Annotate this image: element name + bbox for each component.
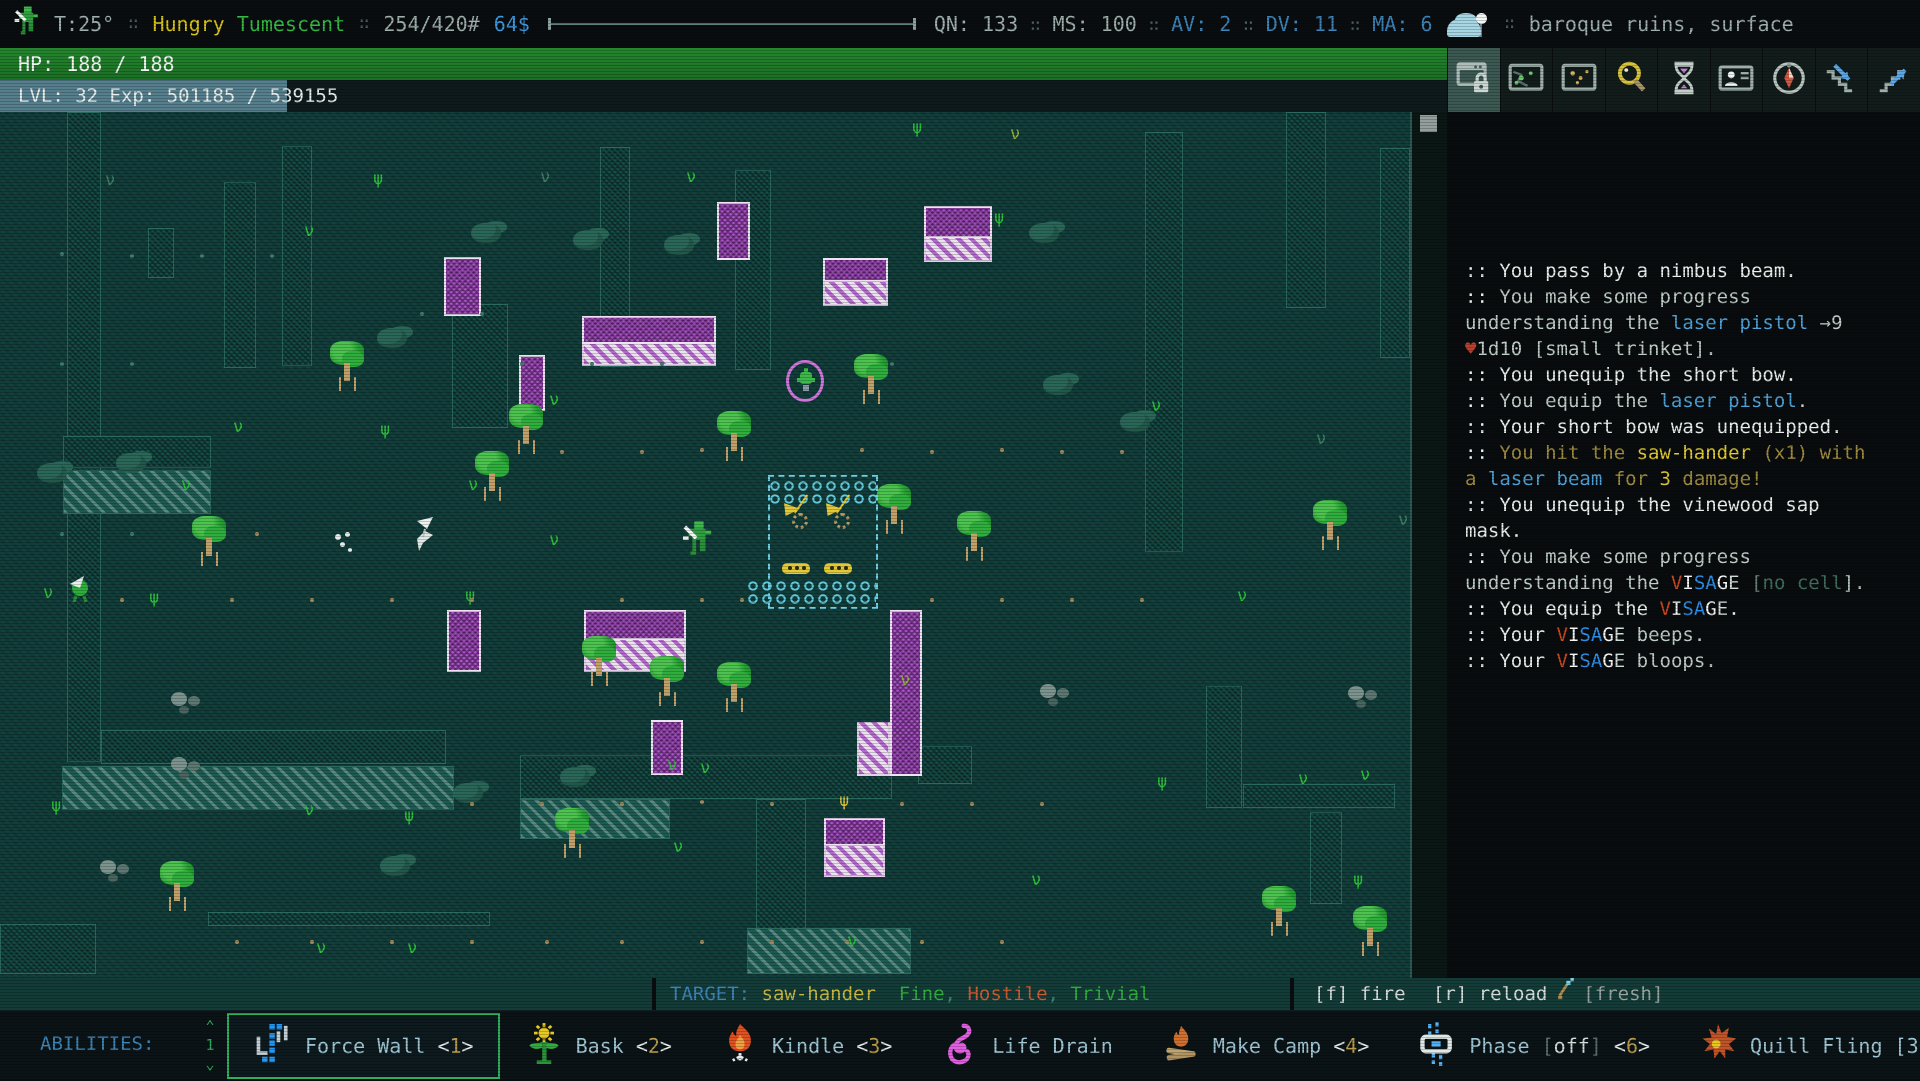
- toolbar-button[interactable]: [1500, 48, 1553, 112]
- separator-icon: ∷: [128, 14, 138, 34]
- abilities-bar: ABILITIES: ⌃ 1 ⌄ Force Wall <1> Bask <2>…: [0, 1010, 1920, 1080]
- ruin-wall-faded: [1310, 812, 1342, 904]
- player-status-icon[interactable]: [14, 5, 40, 44]
- ground-speck: [920, 940, 924, 944]
- grass-tuft: ψ: [149, 590, 159, 607]
- fire-hint[interactable]: [f] fire: [1314, 978, 1406, 1010]
- machine-gear-icon[interactable]: [826, 497, 860, 531]
- grass-tuft: ν: [686, 169, 696, 186]
- ground-speck: [420, 312, 424, 316]
- bask-icon: [524, 1022, 564, 1070]
- ruin-wall-faded: [452, 304, 508, 428]
- grass-tuft: ν: [1151, 398, 1161, 415]
- message-log[interactable]: :: You pass by a nimbus beam.:: You make…: [1447, 112, 1920, 978]
- shrub: [1029, 223, 1059, 243]
- ground-speck: [60, 362, 64, 366]
- grass-tuft: ν: [304, 223, 314, 240]
- grass-tuft: ψ: [1157, 774, 1167, 791]
- weather-cloud-icon[interactable]: [1447, 9, 1491, 39]
- ability-phase[interactable]: Phase [off] <6>: [1393, 1013, 1674, 1079]
- status-effect[interactable]: Hungry: [152, 12, 224, 36]
- game-map[interactable]: ψννψνψννννψψνψνψνψννννψννψννννννννννψ: [0, 112, 1410, 978]
- target-segment: saw-hander: [762, 983, 876, 1005]
- ground-speck: [230, 598, 234, 602]
- toolbar-button[interactable]: [1552, 48, 1605, 112]
- grass-tuft: ν: [1237, 588, 1247, 605]
- boulder: [171, 692, 187, 706]
- log-line: :: You hit the saw-hander (x1) with: [1465, 440, 1904, 466]
- grass-tuft: ν: [673, 839, 683, 856]
- target-segment: ,: [1048, 983, 1071, 1005]
- log-line: a laser beam for 3 damage!: [1465, 466, 1904, 492]
- ruin-wall-faded: [1380, 148, 1410, 358]
- ground-speck: [620, 940, 624, 944]
- grass-tuft: ν: [549, 392, 559, 409]
- active-effects-bar: ACTIVE EFFECTS:: [0, 978, 652, 1010]
- grass-tuft: ψ: [912, 120, 922, 137]
- ability-force-wall[interactable]: Force Wall <1>: [227, 1013, 500, 1079]
- separator-icon: ∷: [1149, 16, 1159, 36]
- ruin-wall-faded: [224, 182, 256, 368]
- grass-tuft: ν: [1298, 771, 1308, 788]
- boulder: [171, 757, 187, 771]
- ground-speck: [700, 448, 704, 452]
- grass-tuft: ψ: [839, 793, 849, 810]
- ground-speck: [60, 532, 64, 536]
- shrub: [664, 235, 694, 255]
- shrub: [377, 328, 407, 348]
- ground-speck: [1060, 450, 1064, 454]
- ground-speck: [1000, 940, 1004, 944]
- ruin-wall: [924, 206, 992, 238]
- toolbar-button[interactable]: [1815, 48, 1868, 112]
- temperature: T:25°: [54, 12, 114, 36]
- ground-speck: [660, 362, 664, 366]
- separator-icon: ∷: [1030, 16, 1040, 36]
- shrub: [573, 230, 603, 250]
- ground-speck: [470, 940, 474, 944]
- tree[interactable]: [328, 341, 368, 393]
- ground-speck: [130, 254, 134, 258]
- stairs-up-icon: [1875, 59, 1913, 101]
- combat-stats: QN: 133 ∷ MS: 100 ∷ AV: 2 ∷ DV: 11 ∷ MA:…: [934, 12, 1433, 36]
- grass-tuft: ψ: [465, 588, 475, 605]
- log-line: mask.: [1465, 518, 1904, 544]
- shrub: [380, 856, 410, 876]
- grass-tuft: ψ: [404, 808, 414, 825]
- ground-speck: [540, 802, 544, 806]
- ground-speck: [520, 362, 524, 366]
- grass-tuft: ν: [105, 172, 115, 189]
- grass-tuft: ν: [540, 169, 550, 186]
- ruin-wall-faded: [0, 924, 96, 974]
- ruin-wall-faded: [1145, 132, 1183, 552]
- shrub: [1043, 375, 1073, 395]
- ground-speck: [130, 362, 134, 366]
- tree[interactable]: [190, 516, 230, 568]
- ruin-wall-top: [823, 282, 888, 306]
- grass-tuft: ν: [1316, 431, 1326, 448]
- ground-speck: [200, 254, 204, 258]
- grass-tuft: ν: [1398, 512, 1408, 529]
- player-character[interactable]: [683, 518, 713, 566]
- machine-hull[interactable]: [824, 563, 852, 574]
- separator-icon: ∷: [1350, 16, 1360, 36]
- boulder: [1348, 686, 1364, 700]
- grass-tuft: ψ: [373, 171, 383, 188]
- tree[interactable]: [473, 451, 513, 503]
- ruin-wall: [717, 202, 750, 260]
- target-segment: ,: [945, 983, 968, 1005]
- tree[interactable]: [1351, 906, 1391, 958]
- ruin-wall-faded: [208, 912, 490, 926]
- ground-speck: [700, 598, 704, 602]
- ruin-wall-faded: [101, 730, 446, 764]
- feather-specks: [335, 532, 355, 556]
- shrub: [471, 223, 501, 243]
- ruin-wall-faded: [1243, 784, 1395, 808]
- grass-tuft: ν: [316, 940, 326, 957]
- stat-value: DV: 11: [1266, 12, 1338, 36]
- ruin-wall-top: [857, 722, 890, 776]
- ground-speck: [740, 598, 744, 602]
- log-line: :: You pass by a nimbus beam.: [1465, 258, 1904, 284]
- ruin-wall-faded: [1286, 112, 1326, 308]
- reload-hint[interactable]: [r] reload: [1433, 978, 1547, 1010]
- ruin-wall-faded: [756, 799, 806, 931]
- ground-speck: [620, 802, 624, 806]
- target-segment: Hostile: [967, 983, 1047, 1005]
- ground-speck: [545, 940, 549, 944]
- ground-speck: [1140, 598, 1144, 602]
- toolbar-button[interactable]: [1762, 48, 1815, 112]
- magnifier-icon: [1612, 59, 1650, 101]
- tree[interactable]: [875, 484, 915, 536]
- ruin-rubble-faded: [747, 928, 911, 974]
- grass-tuft: ψ: [51, 798, 61, 815]
- separator-icon: ∷: [359, 14, 369, 34]
- status-effect[interactable]: Tumescent: [237, 12, 345, 36]
- stat-value: MA: 6: [1372, 12, 1432, 36]
- ground-speck: [235, 940, 239, 944]
- machine-hull[interactable]: [782, 563, 810, 574]
- grass-tuft: ν: [468, 477, 478, 494]
- toolbar-button[interactable]: [1447, 48, 1500, 112]
- hunger-track: [548, 18, 916, 30]
- ground-speck: [390, 598, 394, 602]
- log-line: understanding the VISAGE [no cell].: [1465, 570, 1904, 596]
- log-line: :: You unequip the vinewood sap: [1465, 492, 1904, 518]
- shrub: [116, 453, 146, 473]
- log-line: :: You equip the VISAGE.: [1465, 596, 1904, 622]
- grass-tuft: ν: [43, 585, 53, 602]
- log-line: :: You unequip the short bow.: [1465, 362, 1904, 388]
- ground-speck: [1120, 450, 1124, 454]
- target-segment: Fine: [876, 983, 945, 1005]
- ground-speck: [560, 450, 564, 454]
- grass-tuft: ν: [900, 672, 910, 689]
- compass-icon: [1770, 59, 1808, 101]
- shrub: [1120, 412, 1150, 432]
- grass-tuft: ν: [1010, 126, 1020, 143]
- toolbar: [1447, 48, 1920, 112]
- tree[interactable]: [580, 636, 620, 688]
- toolbar-button[interactable]: [1605, 48, 1658, 112]
- grass-tuft: ν: [181, 477, 191, 494]
- grass-tuft: ψ: [380, 422, 390, 439]
- ruin-wall: [447, 610, 481, 672]
- tree[interactable]: [955, 511, 995, 563]
- abilities-pager[interactable]: ⌃ 1 ⌄: [200, 1017, 220, 1074]
- ground-speck: [900, 802, 904, 806]
- abilities-label: ABILITIES:: [40, 1033, 154, 1055]
- kindle-icon: [720, 1022, 760, 1070]
- stat-value: QN: 133: [934, 12, 1018, 36]
- separator-icon: ∷: [1505, 14, 1515, 34]
- target-segment: TARGET:: [670, 983, 762, 1005]
- ability-quill-fling[interactable]: Quill Fling [300 quills left] <7>: [1674, 1013, 1920, 1079]
- pager-up-icon: ⌃: [200, 1017, 220, 1036]
- tree[interactable]: [715, 662, 755, 714]
- make-camp-icon: [1161, 1022, 1201, 1070]
- shrub: [37, 463, 67, 483]
- grass-tuft: ν: [233, 419, 243, 436]
- ruin-wall-top: [824, 846, 885, 877]
- log-line: :: You make some progress: [1465, 544, 1904, 570]
- force-wall-icon: [253, 1022, 293, 1070]
- character-card-icon: [1717, 59, 1755, 101]
- boulder: [1040, 684, 1056, 698]
- ground-speck: [700, 800, 704, 804]
- phase-icon: [1417, 1022, 1457, 1070]
- xp-text: LVL: 32 Exp: 501185 / 539155: [18, 80, 338, 112]
- ruin-wall-faded: [282, 146, 312, 366]
- ground-speck: [470, 802, 474, 806]
- ruin-rubble-faded: [62, 766, 454, 810]
- ground-speck: [480, 312, 484, 316]
- ability-life-drain[interactable]: Life Drain: [916, 1013, 1136, 1079]
- grass-tuft: ν: [1360, 767, 1370, 784]
- ruin-wall-top: [924, 238, 992, 262]
- saw-hander-creature[interactable]: [413, 514, 437, 560]
- tree[interactable]: [553, 808, 593, 860]
- ground-speck: [970, 802, 974, 806]
- stat-value: AV: 2: [1171, 12, 1231, 36]
- ability-bask[interactable]: Bask <2>: [500, 1013, 696, 1079]
- tree[interactable]: [507, 404, 547, 456]
- hourglass-icon: [1665, 59, 1703, 101]
- machine-gear-icon[interactable]: [784, 497, 818, 531]
- ground-speck: [270, 254, 274, 258]
- stairs-down-icon: [1822, 59, 1860, 101]
- window-lock-icon: [1455, 59, 1493, 101]
- ruin-wall-faded: [735, 170, 771, 370]
- log-line: :: You make some progress: [1465, 284, 1904, 310]
- ground-speck: [130, 532, 134, 536]
- status-bar: T:25° ∷ Hungry Tumescent ∷ 254/420# 64$ …: [0, 0, 1920, 48]
- scrollbar-thumb[interactable]: [1420, 115, 1437, 132]
- log-line: ♥1d10 [small trinket].: [1465, 336, 1904, 362]
- status-effects[interactable]: Hungry Tumescent: [152, 12, 345, 36]
- tree[interactable]: [1260, 886, 1300, 938]
- grass-tuft: ν: [700, 760, 710, 777]
- ground-speck: [255, 532, 259, 536]
- ground-speck: [1040, 802, 1044, 806]
- fire-reload-bar: [f] fire [r] reload [fresh]: [1294, 978, 1920, 1010]
- separator-icon: ∷: [1243, 16, 1253, 36]
- grass-tuft: ν: [304, 802, 314, 819]
- ground-speck: [120, 598, 124, 602]
- map-scrollbar[interactable]: [1410, 112, 1447, 978]
- ground-speck: [1070, 598, 1074, 602]
- tree[interactable]: [1311, 500, 1351, 552]
- log-line: :: Your short bow was unequipped.: [1465, 414, 1904, 440]
- hp-bar: HP: 188 / 188: [0, 48, 1447, 80]
- ruin-wall: [890, 610, 922, 776]
- ability-row: Force Wall <1> Bask <2> Kindle <3> Life …: [227, 1011, 1920, 1081]
- ground-speck: [1000, 598, 1004, 602]
- tree[interactable]: [715, 411, 755, 463]
- ground-speck: [310, 598, 314, 602]
- log-line: understanding the laser pistol →9: [1465, 310, 1904, 336]
- caged-creature[interactable]: [786, 360, 824, 402]
- grass-tuft: ψ: [994, 210, 1004, 227]
- tree[interactable]: [852, 354, 892, 406]
- toolbar-button[interactable]: [1710, 48, 1763, 112]
- map-local-icon: [1507, 59, 1545, 101]
- ruin-wall: [823, 258, 888, 282]
- boulder: [100, 860, 116, 874]
- ammo-quill-icon: [1555, 978, 1575, 1010]
- ground-speck: [590, 362, 594, 366]
- grass-tuft: ν: [667, 757, 677, 774]
- shrub: [560, 767, 590, 787]
- ruin-wall: [582, 316, 716, 344]
- ground-speck: [390, 940, 394, 944]
- toolbar-button[interactable]: [1867, 48, 1920, 112]
- ground-speck: [60, 252, 64, 256]
- tree[interactable]: [158, 861, 198, 913]
- ability-make-camp[interactable]: Make Camp <4>: [1137, 1013, 1394, 1079]
- shrub: [453, 783, 483, 803]
- target-bar: TARGET: saw-hander Fine, Hostile, Trivia…: [656, 978, 1290, 1010]
- grass-tuft: ν: [549, 532, 559, 549]
- water: [746, 579, 876, 607]
- log-line: :: Your VISAGE beeps.: [1465, 622, 1904, 648]
- grass-tuft: ν: [407, 940, 417, 957]
- ruin-wall-top: [582, 344, 716, 366]
- ground-speck: [310, 940, 314, 944]
- grass-tuft: ν: [1031, 872, 1041, 889]
- ground-speck: [930, 450, 934, 454]
- ruin-wall: [444, 257, 481, 316]
- log-line: :: You equip the laser pistol.: [1465, 388, 1904, 414]
- pager-page: 1: [200, 1036, 220, 1055]
- ground-speck: [890, 362, 894, 366]
- ground-speck: [770, 940, 774, 944]
- ground-speck: [470, 598, 474, 602]
- ruin-wall-faded: [1206, 686, 1242, 808]
- tree[interactable]: [648, 656, 688, 708]
- toolbar-button[interactable]: [1657, 48, 1710, 112]
- location-label: baroque ruins, surface: [1529, 12, 1794, 36]
- money: 64$: [494, 12, 530, 36]
- grass-tuft: ψ: [1353, 872, 1363, 889]
- ground-speck: [620, 598, 624, 602]
- carry-weight: 254/420#: [383, 12, 479, 36]
- ground-speck: [845, 940, 849, 944]
- ground-speck: [930, 598, 934, 602]
- stat-value: MS: 100: [1052, 12, 1136, 36]
- ground-speck: [700, 940, 704, 944]
- target-segment: Trivial: [1070, 983, 1150, 1005]
- ability-kindle[interactable]: Kindle <3>: [696, 1013, 916, 1079]
- ammo-status: [fresh]: [1583, 978, 1663, 1010]
- xp-bar: LVL: 32 Exp: 501185 / 539155: [0, 80, 1447, 112]
- ruin-wall: [824, 818, 885, 846]
- pager-down-icon: ⌄: [200, 1055, 220, 1074]
- life-drain-icon: [940, 1022, 980, 1070]
- quill-fling-icon: [1698, 1022, 1738, 1070]
- ruin-wall-faded: [148, 228, 174, 278]
- ruin-wall-faded: [918, 746, 972, 784]
- ground-speck: [860, 448, 864, 452]
- ground-speck: [640, 450, 644, 454]
- log-line: :: Your VISAGE bloops.: [1465, 648, 1904, 674]
- ground-speck: [1000, 448, 1004, 452]
- small-creature[interactable]: [66, 572, 92, 606]
- ground-speck: [770, 802, 774, 806]
- map-world-icon: [1560, 59, 1598, 101]
- fenced-pool[interactable]: [768, 475, 878, 609]
